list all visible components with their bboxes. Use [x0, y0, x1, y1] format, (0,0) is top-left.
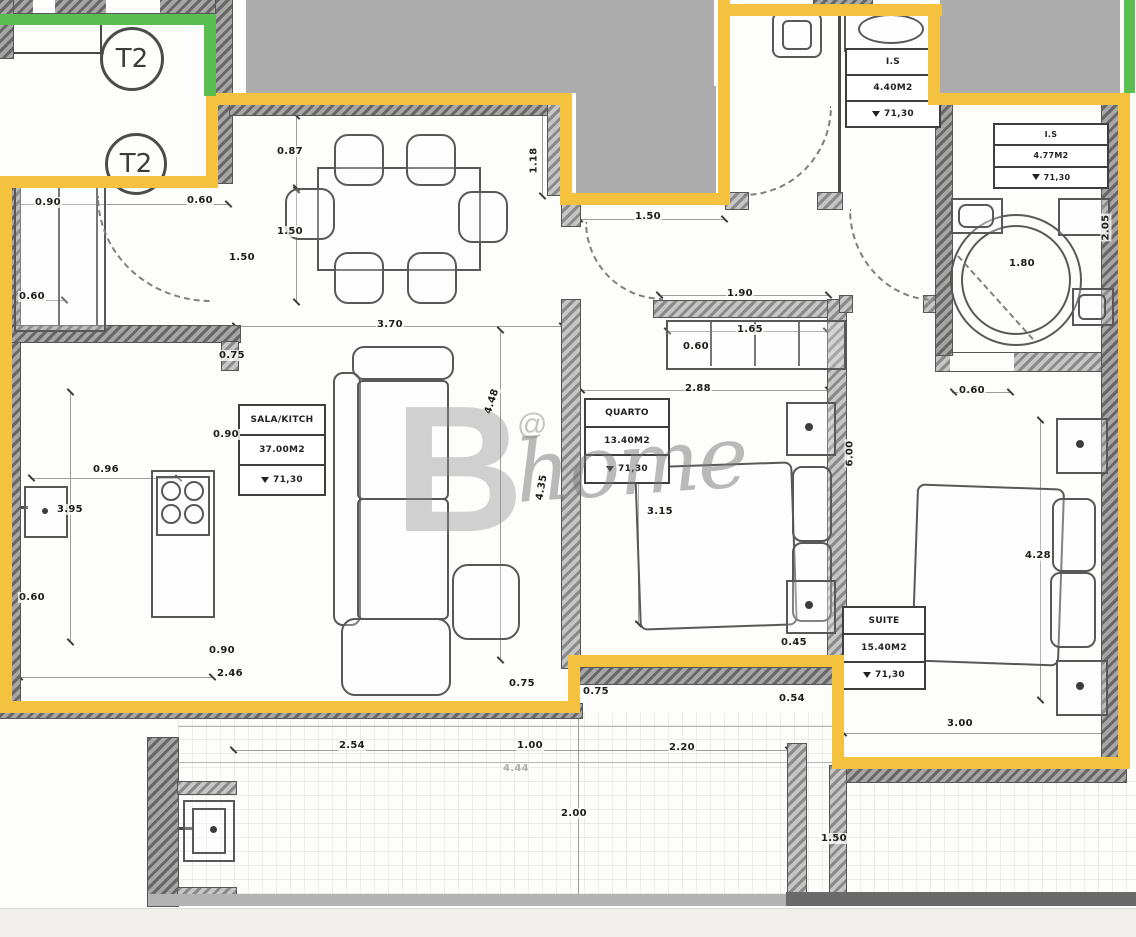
- partition-line: [12, 52, 104, 54]
- floor-plan: T2 T2 SALA/KITCH 37.00M2 71,30 QUARTO 13…: [0, 0, 1136, 937]
- highlight-green-segment: [1124, 0, 1135, 93]
- highlight-yellow-segment: [568, 655, 844, 667]
- room-label-bathroom: I.S 4.77M2 71,30: [993, 123, 1109, 189]
- wall: [788, 744, 806, 900]
- dimension-label: 1.18: [528, 147, 539, 175]
- wall: [840, 296, 852, 312]
- dining-chair: [334, 134, 384, 186]
- room-area: 13.40M2: [586, 426, 668, 454]
- dimension-label: 0.45: [780, 637, 808, 648]
- dimension-label: 4.35: [534, 473, 550, 502]
- level-triangle-icon: [863, 672, 871, 678]
- room-level: 71,30: [586, 454, 668, 482]
- door-arc-suite: [849, 209, 935, 301]
- highlight-yellow-segment: [560, 193, 730, 205]
- wall: [216, 0, 232, 97]
- room-label-sala: SALA/KITCH 37.00M2 71,30: [238, 404, 326, 496]
- dimension-label: 4.44: [502, 763, 530, 774]
- dimension-label: 0.90: [208, 645, 236, 656]
- highlight-green-segment: [0, 14, 214, 25]
- dimension-label: 2.05: [1100, 214, 1111, 242]
- wall-opening: [106, 0, 160, 13]
- pillow: [792, 466, 832, 542]
- dimension-label: 0.60: [18, 592, 46, 603]
- page-footer-strip: [0, 908, 1136, 937]
- dimension-label: 0.60: [18, 291, 46, 302]
- tap-dot: [210, 826, 217, 833]
- room-level-value: 71,30: [875, 670, 905, 680]
- room-level: 71,30: [240, 464, 324, 494]
- redaction-block: [246, 0, 714, 93]
- terrace-step-line: [178, 726, 834, 727]
- room-area: 4.40M2: [847, 74, 939, 100]
- dimension-label: 0.87: [276, 146, 304, 157]
- dimension-label: 1.80: [1008, 258, 1036, 269]
- dimension-line: [578, 714, 579, 900]
- highlight-yellow-segment: [1118, 93, 1130, 769]
- dimension-line: [842, 733, 1120, 734]
- dimension-label: 0.90: [34, 197, 62, 208]
- dimension-label: 4.48: [482, 387, 501, 417]
- wall: [0, 0, 13, 58]
- dimension-label: 1.50: [276, 226, 304, 237]
- highlight-yellow-segment: [0, 701, 580, 713]
- bidet-inner: [1078, 294, 1106, 320]
- highlight-yellow-segment: [928, 93, 1130, 105]
- sofa-cushion: [357, 380, 449, 500]
- dimension-label: 1.50: [228, 252, 256, 263]
- highlight-yellow-segment: [206, 93, 572, 105]
- dimension-label: 0.54: [778, 693, 806, 704]
- dimension-label: 0.75: [582, 686, 610, 697]
- dimension-label: 1.00: [516, 740, 544, 751]
- sink-basin: [858, 14, 924, 44]
- dimension-label: 3.00: [946, 718, 974, 729]
- dining-chair: [406, 134, 456, 186]
- dimension-label: 4.28: [1024, 550, 1052, 561]
- watermark-at-icon: @: [517, 408, 547, 442]
- suite-bed: [911, 483, 1065, 666]
- room-level: 71,30: [847, 100, 939, 126]
- wall: [818, 193, 842, 209]
- dimension-label: 2.46: [216, 668, 244, 679]
- dimension-line: [18, 677, 214, 678]
- dimension-label: 0.60: [682, 341, 710, 352]
- sofa-armrest: [352, 346, 454, 380]
- nightstand-lamp: [805, 601, 813, 609]
- wall: [562, 300, 580, 668]
- dimension-label: 1.65: [736, 324, 764, 335]
- balcony-fixture-inner: [192, 808, 226, 854]
- highlight-yellow-segment: [0, 176, 12, 713]
- highlight-yellow-segment: [928, 4, 940, 104]
- nightstand-lamp: [1076, 682, 1084, 690]
- stove-burner: [184, 504, 204, 524]
- toilet-bowl: [782, 20, 812, 50]
- dining-chair: [458, 191, 508, 243]
- room-level: 71,30: [995, 166, 1107, 187]
- stove-burner: [161, 481, 181, 501]
- wall: [148, 738, 178, 906]
- highlight-yellow-segment: [832, 657, 844, 769]
- sink-drain: [42, 508, 48, 514]
- dining-chair: [407, 252, 457, 304]
- dimension-label: 6.00: [844, 440, 855, 468]
- dimension-line: [232, 750, 790, 751]
- nightstand-lamp: [1076, 440, 1084, 448]
- dimension-label: 0.96: [92, 464, 120, 475]
- nightstand-lamp: [805, 423, 813, 431]
- unit-label-t2: T2: [100, 27, 164, 91]
- room-label-wc: I.S 4.40M2 71,30: [845, 48, 941, 128]
- dimension-label: 1.90: [726, 288, 754, 299]
- room-title: QUARTO: [586, 400, 668, 426]
- level-triangle-icon: [1032, 174, 1040, 180]
- dimension-label: 0.90: [212, 429, 240, 440]
- dimension-label: 1.50: [820, 833, 848, 844]
- quarto-bed: [634, 461, 798, 630]
- partition-line: [838, 8, 841, 194]
- unit-label-text: T2: [116, 44, 148, 74]
- door-arc-entry: [97, 196, 211, 302]
- sink-basin: [958, 204, 994, 228]
- room-title: I.S: [847, 50, 939, 74]
- dimension-label: 0.75: [218, 350, 246, 361]
- wall: [936, 97, 952, 355]
- pillow: [1052, 498, 1096, 572]
- highlight-yellow-segment: [0, 176, 218, 188]
- wall-opening: [33, 0, 55, 13]
- highlight-yellow-segment: [832, 757, 1130, 769]
- dimension-label: 2.20: [668, 742, 696, 753]
- door-arc-quarto: [585, 222, 663, 300]
- redaction-block: [576, 86, 716, 194]
- highlight-yellow-segment: [718, 0, 730, 205]
- highlight-yellow-segment: [560, 93, 572, 205]
- sofa-cushion: [357, 498, 449, 620]
- dimension-label: 1.50: [634, 211, 662, 222]
- level-triangle-icon: [606, 466, 614, 472]
- highlight-yellow-segment: [718, 4, 942, 16]
- room-area: 37.00M2: [240, 434, 324, 464]
- terrace-floor-grid: [846, 768, 1136, 894]
- room-title: SALA/KITCH: [240, 406, 324, 434]
- dining-chair: [334, 252, 384, 304]
- dimension-label: 3.15: [646, 506, 674, 517]
- room-title: I.S: [995, 125, 1107, 144]
- dimension-label: 3.70: [376, 319, 404, 330]
- pillow: [1050, 572, 1096, 648]
- wall: [570, 668, 846, 684]
- terrace-floor-grid: [178, 712, 834, 894]
- dimension-label: 0.75: [508, 678, 536, 689]
- dimension-line: [70, 392, 71, 642]
- armchair: [341, 618, 451, 696]
- dimension-label: 0.60: [958, 385, 986, 396]
- terrace-edge-wall: [786, 892, 1136, 906]
- door-arc-wc: [744, 106, 832, 196]
- door-opening: [950, 353, 1014, 371]
- highlight-green-segment: [204, 14, 216, 96]
- room-level: 71,30: [844, 661, 924, 688]
- unit-label-text: T2: [120, 149, 152, 179]
- dimension-line: [542, 112, 543, 196]
- wall: [840, 768, 1126, 782]
- dimension-label: 2.54: [338, 740, 366, 751]
- wall: [654, 301, 846, 317]
- dimension-label: 0.60: [186, 195, 214, 206]
- level-triangle-icon: [872, 111, 880, 117]
- redaction-block: [940, 0, 1120, 93]
- room-level-value: 71,30: [273, 475, 303, 485]
- room-label-quarto: QUARTO 13.40M2 71,30: [584, 398, 670, 484]
- room-title: SUITE: [844, 608, 924, 633]
- room-label-suite: SUITE 15.40M2 71,30: [842, 606, 926, 690]
- highlight-yellow-segment: [206, 93, 218, 188]
- coffee-table: [452, 564, 520, 640]
- stove-burner: [184, 481, 204, 501]
- wall: [178, 782, 236, 794]
- dimension-label: 3.95: [56, 504, 84, 515]
- room-level-value: 71,30: [1044, 173, 1071, 182]
- room-area: 15.40M2: [844, 633, 924, 660]
- room-area: 4.77M2: [995, 144, 1107, 165]
- dimension-label: 2.00: [560, 808, 588, 819]
- dimension-label: 2.88: [684, 383, 712, 394]
- room-level-value: 71,30: [618, 464, 648, 474]
- room-level-value: 71,30: [884, 109, 914, 119]
- level-triangle-icon: [261, 477, 269, 483]
- stove-burner: [161, 504, 181, 524]
